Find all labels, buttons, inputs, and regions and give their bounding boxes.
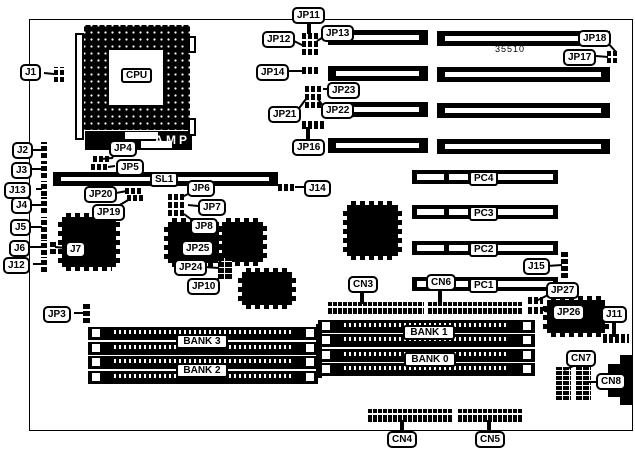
sl1-label: SL1 — [150, 172, 178, 187]
jp11-jumper — [302, 33, 320, 39]
isa-slot-4-left — [328, 138, 428, 153]
callout-cn6: CN6 — [426, 274, 456, 291]
isa-slot-key — [336, 143, 419, 148]
j7-header — [50, 241, 56, 254]
chip-lower-center — [242, 272, 292, 305]
jp5-jumper — [91, 164, 109, 170]
simm-latch — [523, 365, 531, 373]
simm-latch — [322, 336, 330, 344]
chip-pins — [292, 276, 296, 301]
callout-cn8: CN8 — [596, 373, 626, 390]
cn7-connector — [556, 367, 571, 400]
chip-pins — [58, 221, 62, 263]
pci-key — [417, 209, 444, 215]
callout-jp20: JP20 — [84, 186, 117, 203]
chip-pins — [398, 209, 402, 252]
cn4-connector — [368, 409, 452, 422]
chip-pins — [263, 226, 267, 258]
simm-latch — [306, 358, 314, 366]
callout-j14: J14 — [304, 180, 331, 197]
callout-cn4: CN4 — [387, 431, 417, 448]
pci-key — [449, 245, 468, 251]
callout-j11: J11 — [601, 306, 627, 323]
callout-j2: J2 — [12, 142, 33, 159]
pci-key — [449, 209, 468, 215]
simm-latch — [306, 373, 314, 381]
callout-cn7: CN7 — [566, 350, 596, 367]
simm-latch — [322, 351, 330, 359]
jp8-jumper — [168, 210, 186, 216]
j4-header — [41, 197, 47, 213]
chip-pins — [543, 304, 547, 329]
j13-header — [41, 181, 47, 196]
isa-slot-4-right — [437, 139, 610, 154]
socket-lever — [75, 33, 84, 140]
pc3-label: PC3 — [469, 206, 498, 221]
bank3-label: BANK 3 — [176, 334, 228, 349]
jp17-jumper — [613, 50, 617, 63]
j2-header — [41, 142, 47, 158]
simm-latch — [523, 351, 531, 359]
bank0-label: BANK 0 — [404, 352, 456, 367]
pci-key — [497, 209, 553, 215]
callout-jp18: JP18 — [578, 30, 611, 47]
pc2-label: PC2 — [469, 242, 498, 257]
jp27-jumper2 — [528, 307, 543, 314]
simm-latch — [523, 336, 531, 344]
pci-key — [449, 174, 468, 180]
bank2-label: BANK 2 — [176, 363, 228, 378]
j1-header — [60, 67, 64, 82]
chip-pins — [343, 209, 347, 252]
jp27-jumper — [528, 297, 543, 304]
pci-key — [497, 174, 553, 180]
callout-jp10: JP10 — [187, 278, 220, 295]
cn8-connector — [576, 367, 591, 400]
j11-header — [603, 334, 629, 343]
jp24-jp25-block — [218, 258, 232, 279]
callout-jp13: JP13 — [321, 25, 354, 42]
isa-slot-key — [445, 72, 601, 77]
callout-j7: J7 — [65, 241, 86, 258]
callout-jp5: JP5 — [116, 159, 144, 176]
callout-jp4: JP4 — [109, 140, 137, 157]
pci-key — [497, 281, 553, 287]
chip-pins — [238, 276, 242, 301]
simm-latch — [92, 329, 100, 337]
chip-pins — [164, 226, 168, 259]
simm-latch — [92, 358, 100, 366]
jp4-jumper — [93, 156, 111, 162]
callout-jp26: JP26 — [552, 304, 585, 321]
simm-latch — [92, 344, 100, 352]
jp3-header — [83, 304, 90, 323]
callout-j4: J4 — [11, 197, 32, 214]
jp23-jumper — [305, 86, 323, 92]
cpu-label: CPU — [121, 68, 152, 83]
simm-latch-column — [316, 322, 322, 378]
chip-pins — [116, 221, 120, 263]
j12-header — [41, 257, 47, 272]
callout-jp22: JP22 — [321, 102, 354, 119]
callout-cn5: CN5 — [475, 431, 505, 448]
chip-pins — [218, 226, 222, 258]
pci-key — [497, 245, 553, 251]
callout-j15: J15 — [523, 258, 550, 275]
chip-center-right — [222, 222, 263, 262]
callout-j3: J3 — [11, 162, 32, 179]
callout-jp11: JP11 — [292, 7, 325, 24]
motherboard-diagram: AMP CPU 35510 SL1 PC4 PC3 PC2 PC1 — [0, 0, 635, 450]
bank1-label: BANK 1 — [403, 325, 455, 340]
callout-j6: J6 — [9, 240, 30, 257]
cn3-connector — [328, 302, 424, 314]
cn6-connector — [428, 302, 522, 314]
jp22-jumper — [305, 94, 323, 100]
callout-jp12: JP12 — [262, 31, 295, 48]
pci-key — [417, 245, 444, 251]
j15-header — [561, 252, 568, 278]
jp7-jumper — [168, 202, 186, 208]
simm-latch — [322, 322, 330, 330]
jp13-jumper — [302, 49, 320, 55]
jp20-jumper — [125, 188, 141, 194]
callout-jp14: JP14 — [256, 64, 289, 81]
jp16-jumper — [302, 121, 325, 129]
j3-header — [41, 161, 47, 178]
pci-key — [417, 174, 444, 180]
socket-tab-top — [188, 36, 196, 53]
chip-chipset — [347, 205, 398, 256]
callout-j5: J5 — [10, 219, 31, 236]
callout-jp21: JP21 — [268, 106, 301, 123]
simm-latch — [306, 344, 314, 352]
callout-jp17: JP17 — [563, 49, 596, 66]
isa-slot-2-left — [328, 66, 428, 81]
pc4-label: PC4 — [469, 171, 498, 186]
simm-latch — [523, 322, 531, 330]
callout-jp27: JP27 — [546, 282, 579, 299]
j6-header — [41, 240, 47, 255]
callout-jp23: JP23 — [327, 82, 360, 99]
jp14-jumper — [302, 67, 319, 74]
simm-latch — [92, 373, 100, 381]
jp6-jumper — [168, 194, 186, 200]
isa-slot-key — [336, 71, 419, 76]
jp17-jumper — [607, 50, 611, 63]
pc1-label: PC1 — [469, 278, 498, 293]
isa-slot-3-right — [437, 103, 610, 118]
callout-jp7: JP7 — [198, 199, 226, 216]
simm-latch — [322, 365, 330, 373]
callout-j1: J1 — [20, 64, 41, 81]
callout-cn3: CN3 — [348, 276, 378, 293]
callout-jp25: JP25 — [181, 240, 214, 257]
callout-jp6: JP6 — [187, 180, 215, 197]
j14-jumper — [278, 184, 296, 191]
j1-header — [54, 67, 58, 82]
callout-jp24: JP24 — [174, 259, 207, 276]
callout-jp16: JP16 — [292, 139, 325, 156]
jp12-jumper — [302, 41, 320, 47]
callout-jp3: JP3 — [43, 306, 71, 323]
board-number: 35510 — [495, 44, 525, 54]
callout-jp8: JP8 — [190, 218, 218, 235]
callout-jp19: JP19 — [92, 204, 125, 221]
callout-j12: J12 — [3, 257, 30, 274]
jp19-jumper — [127, 195, 143, 201]
simm-latch — [306, 329, 314, 337]
amp-brand-text: AMP — [152, 133, 190, 147]
isa-slot-key — [445, 108, 601, 113]
j5-header — [41, 217, 47, 239]
isa-slot-key — [445, 144, 601, 149]
cn5-connector — [458, 409, 523, 422]
isa-slot-2-right — [437, 67, 610, 82]
